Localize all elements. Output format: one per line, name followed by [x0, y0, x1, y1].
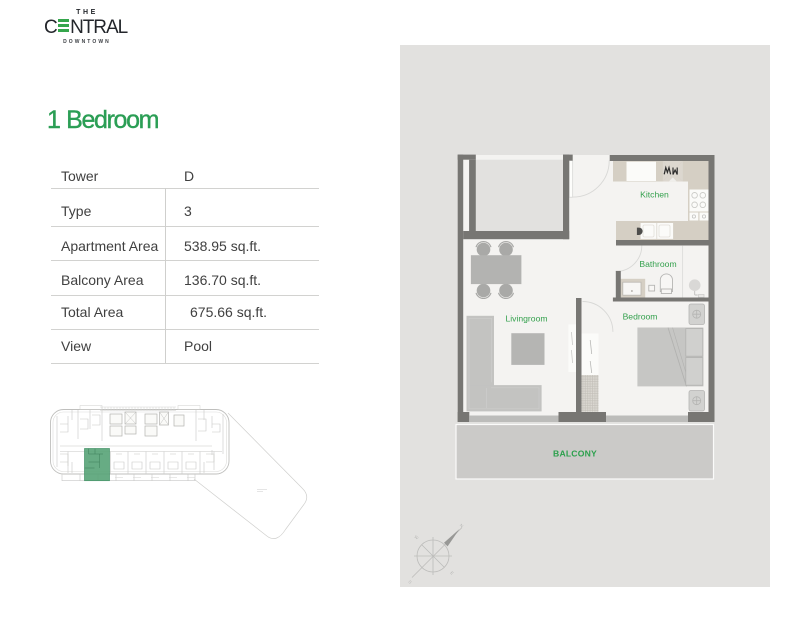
svg-text:Bedroom: Bedroom: [623, 312, 658, 322]
svg-text:E: E: [449, 570, 455, 576]
svg-text:Kitchen: Kitchen: [640, 189, 669, 199]
svg-text:S: S: [407, 579, 413, 585]
svg-text:Livingroom: Livingroom: [505, 314, 547, 324]
svg-text:BALCONY: BALCONY: [553, 449, 597, 459]
svg-text:Bathroom: Bathroom: [639, 259, 676, 269]
svg-text:W: W: [413, 534, 419, 540]
svg-text:N: N: [459, 523, 465, 529]
